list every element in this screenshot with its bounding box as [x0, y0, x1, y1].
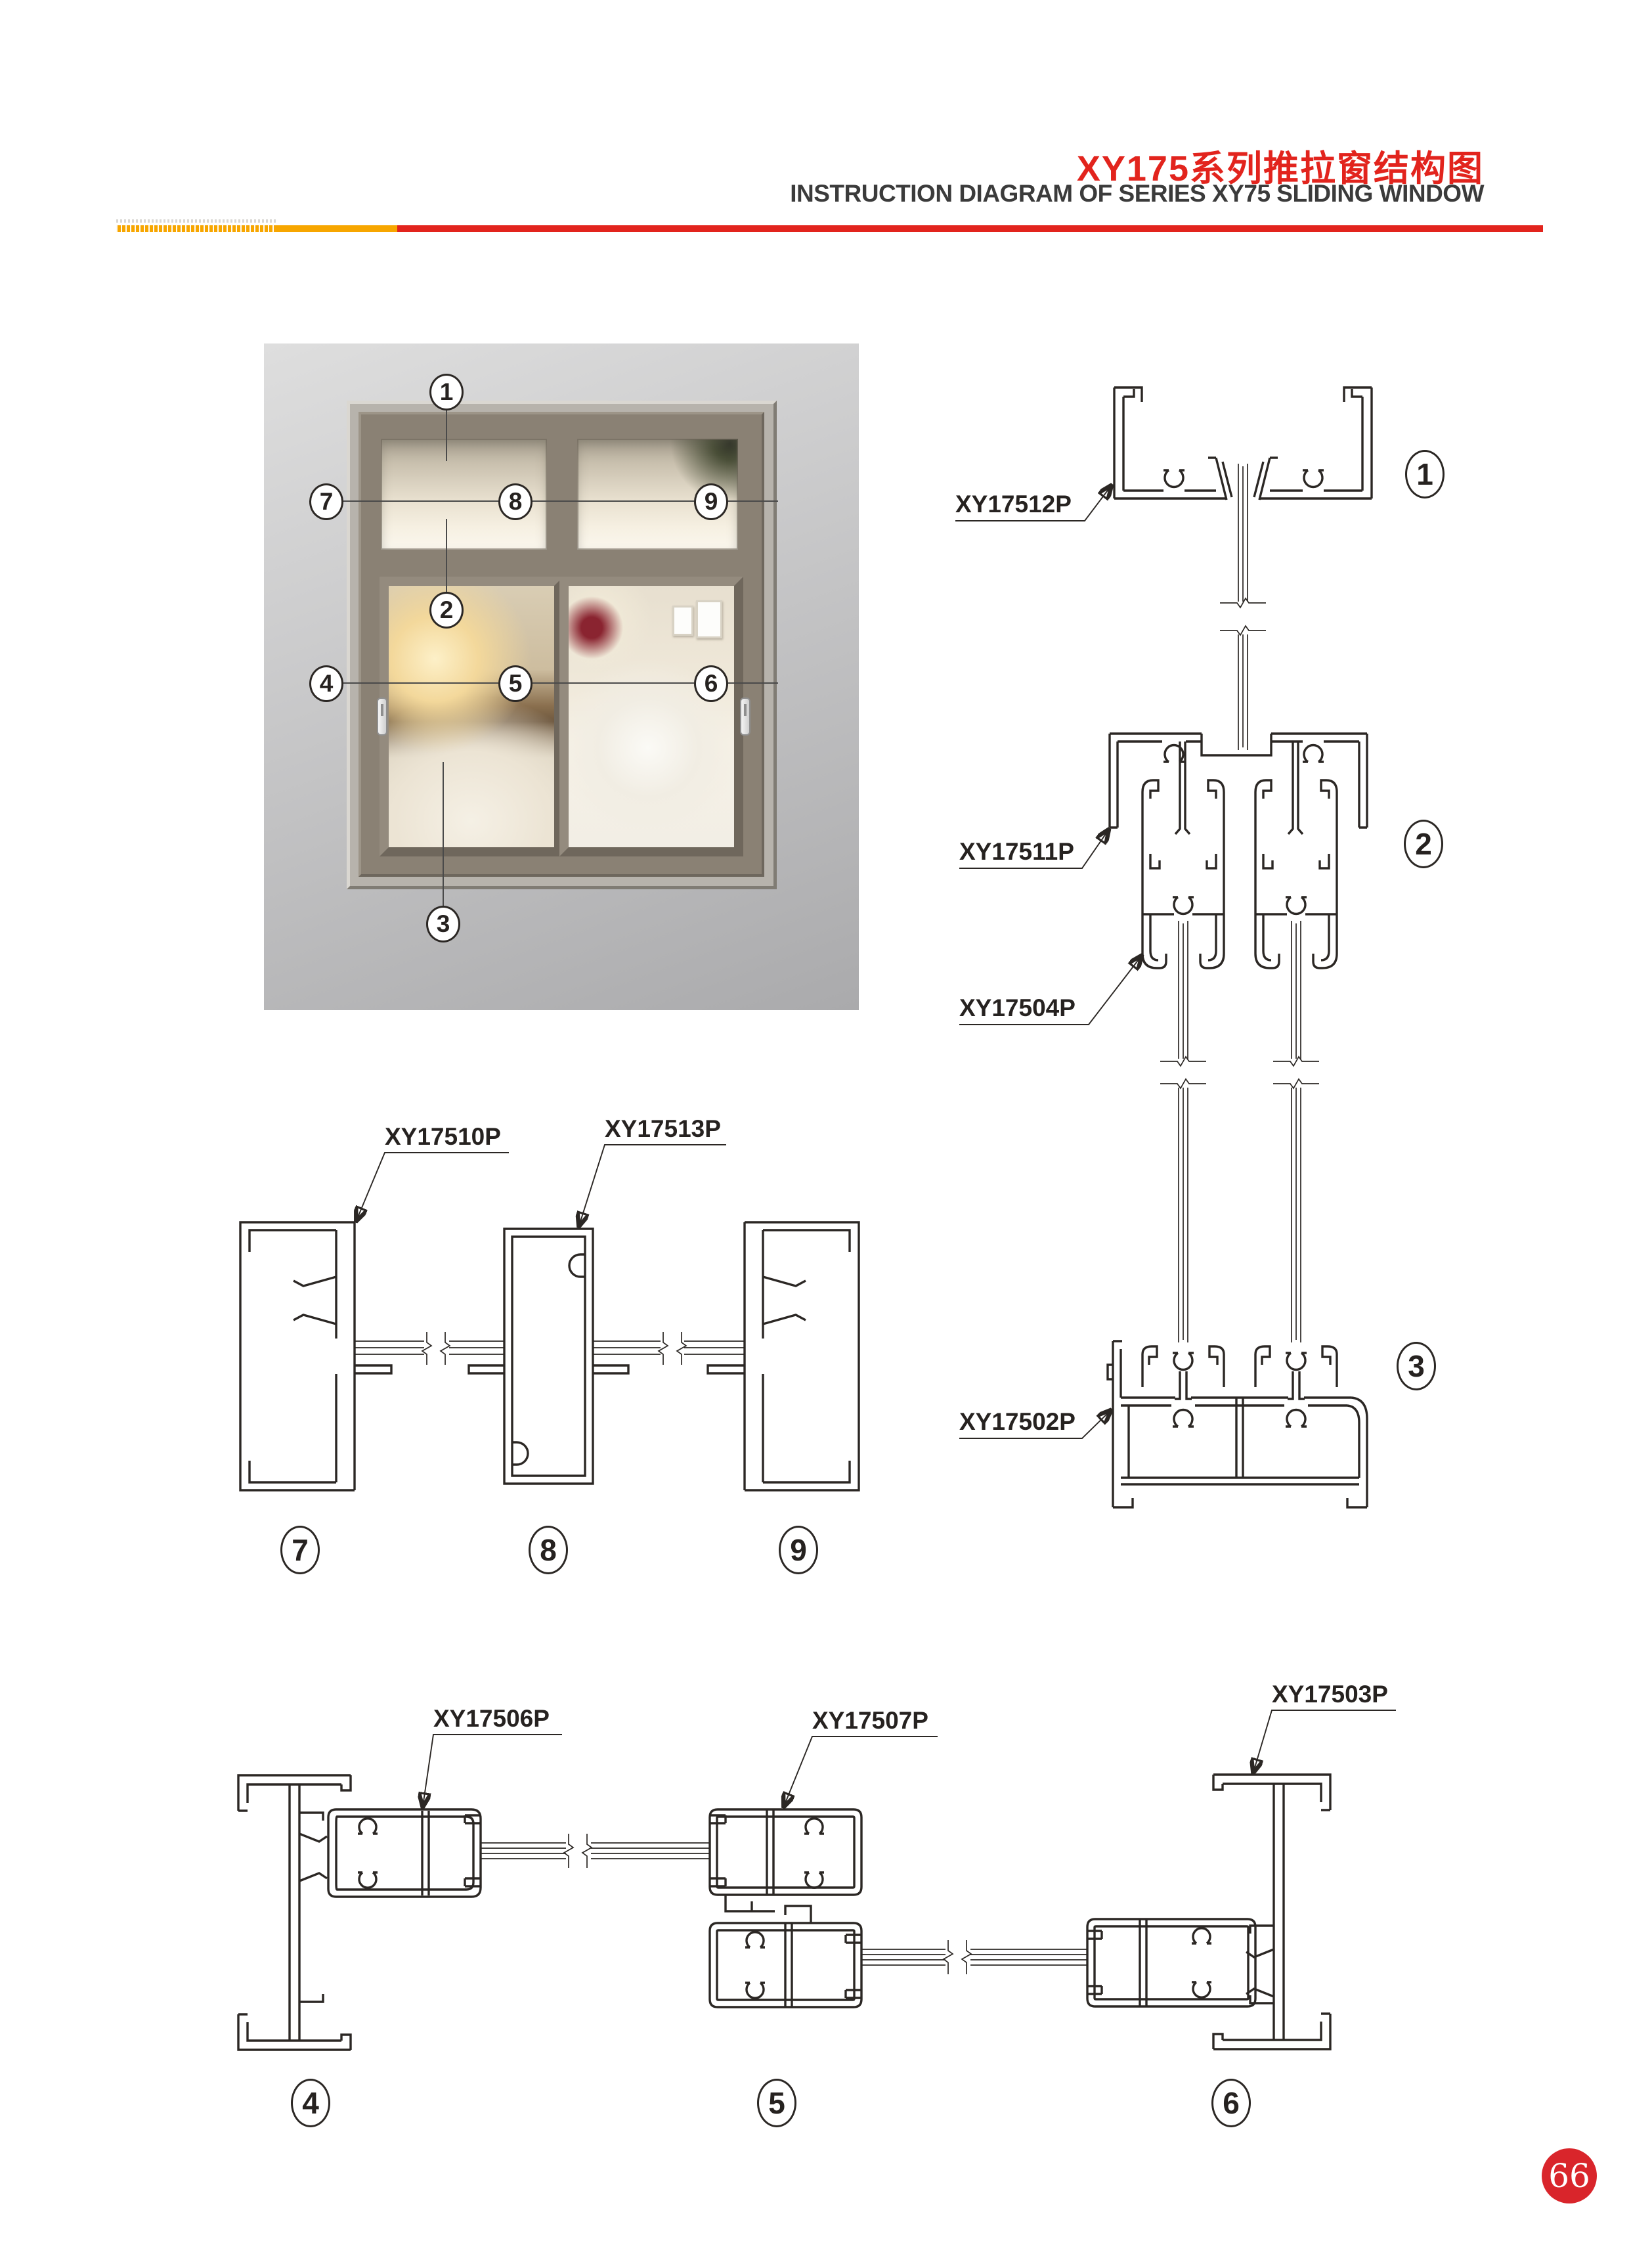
section-number: 7: [292, 1532, 309, 1568]
glass-line-horizontal-89: [593, 1332, 745, 1365]
section-circle-8: 8: [529, 1526, 568, 1574]
section-circle-1: 1: [1405, 450, 1445, 498]
part-label-XY17507P: XY17507P: [812, 1707, 928, 1735]
page-number: 66: [1548, 2157, 1590, 2195]
section-number: 2: [1415, 826, 1432, 862]
leader-lines-right-column: [955, 486, 1141, 1438]
profile-sill-XY17502P: [1108, 1341, 1367, 1507]
section-circle-2: 2: [1404, 820, 1443, 868]
part-label-XY17511P: XY17511P: [959, 838, 1074, 866]
part-label-XY17513P: XY17513P: [605, 1115, 721, 1143]
profile-drawings: [0, 0, 1652, 2258]
profile-jamb-XY17510P-section7: [240, 1222, 391, 1490]
part-label-XY17506P: XY17506P: [433, 1705, 550, 1733]
part-label-XY17503P: XY17503P: [1272, 1681, 1388, 1708]
glass-line-horizontal-78: [355, 1332, 504, 1365]
part-label-XY17502P: XY17502P: [959, 1408, 1076, 1436]
glass-line-horizontal-56: [861, 1940, 1087, 1974]
leader-lines-middle-row: [357, 1145, 726, 1226]
catalog-page: XY175系列推拉窗结构图 INSTRUCTION DIAGRAM OF SER…: [0, 0, 1652, 2258]
section-number: 4: [302, 2085, 319, 2121]
section-number: 6: [1223, 2085, 1240, 2121]
profile-interlock-XY17513P-section8: [469, 1229, 628, 1484]
section-circle-7: 7: [280, 1526, 320, 1574]
glass-line-vertical-2: [1160, 921, 1319, 1342]
section-number: 8: [540, 1532, 557, 1568]
glass-line-horizontal-45: [481, 1834, 710, 1868]
part-label-XY17512P: XY17512P: [955, 491, 1072, 518]
glass-line-vertical-1: [1220, 464, 1266, 750]
section-circle-4: 4: [291, 2079, 330, 2127]
part-label-XY17504P: XY17504P: [959, 994, 1076, 1022]
profile-sash-bottom-left: [1142, 1346, 1224, 1399]
section-circle-6: 6: [1211, 2079, 1251, 2127]
section-number: 1: [1416, 456, 1433, 492]
profile-sash-bottom-right: [1255, 1346, 1337, 1399]
profile-meeting-stile-XY17507P: [710, 1809, 861, 2007]
section-circle-3: 3: [1397, 1342, 1436, 1390]
section-number: 5: [768, 2085, 785, 2121]
profile-left-jamb-section4: [238, 1775, 351, 2050]
profile-jamb-section9: [708, 1222, 859, 1490]
page-number-badge: 66: [1542, 2148, 1597, 2203]
section-circle-9: 9: [779, 1526, 818, 1574]
section-number: 9: [790, 1532, 807, 1568]
part-label-XY17510P: XY17510P: [385, 1123, 501, 1151]
profile-sash-stile-XY17506P: [328, 1809, 481, 1897]
profile-sash-stile-section6: [1087, 1919, 1255, 2006]
profile-right-jamb-XY17503P-section6: [1213, 1775, 1330, 2049]
section-number: 3: [1408, 1348, 1425, 1384]
section-circle-5: 5: [757, 2079, 796, 2127]
